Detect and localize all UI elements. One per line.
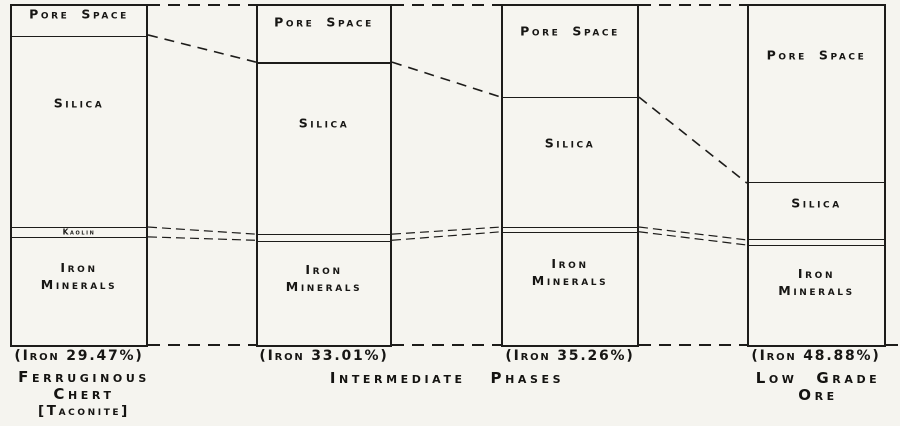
- segment-kaolin-band: [503, 227, 637, 234]
- connector-dashed-line: [639, 97, 747, 183]
- bar-column-ferruginous-chert: Pore Space Silica Kaolin Iron Minerals: [10, 4, 148, 347]
- iron-percentage-caption: (Iron 33.01%): [259, 348, 388, 364]
- connector-dashed-line: [392, 62, 501, 97]
- connector-dashed-line: [148, 227, 256, 234]
- segment-silica: Silica: [258, 64, 390, 234]
- segment-label-iron-minerals: Iron Minerals: [769, 266, 865, 300]
- segment-label-pore-space: Pore Space: [749, 48, 884, 63]
- segment-kaolin-band: [749, 239, 884, 246]
- segment-label-silica: Silica: [749, 195, 884, 210]
- segment-silica: Silica: [12, 37, 146, 227]
- category-label-line: Intermediate Phases: [330, 370, 564, 387]
- category-label-line: Ferruginous: [18, 369, 150, 386]
- iron-percentage-caption: (Iron 48.88%): [751, 348, 880, 364]
- segment-pore-space: Pore Space: [258, 6, 390, 62]
- segment-label-kaolin: Kaolin: [12, 229, 146, 237]
- segment-kaolin-band: [258, 234, 390, 242]
- category-label-line: Chert: [18, 386, 150, 403]
- segment-silica: Silica: [749, 183, 884, 239]
- category-label-line: Low Grade: [756, 370, 881, 387]
- connector-dashed-line: [148, 237, 256, 240]
- connector-dashed-line: [639, 232, 747, 245]
- category-label-line: Ore: [756, 387, 881, 404]
- connector-dashed-line: [392, 227, 501, 234]
- segment-iron-minerals: Iron Minerals: [258, 242, 390, 345]
- segment-silica: Silica: [503, 98, 637, 226]
- segment-label-pore-space: Pore Space: [503, 24, 637, 39]
- segment-label-silica: Silica: [258, 116, 390, 131]
- segment-iron-minerals: Iron Minerals: [749, 246, 884, 345]
- segment-pore-space: Pore Space: [12, 6, 146, 36]
- segment-pore-space: Pore Space: [503, 6, 637, 97]
- iron-percentage-caption: (Iron 35.26%): [505, 348, 634, 364]
- segment-label-pore-space: Pore Space: [258, 14, 390, 29]
- category-label-ferruginous-chert: Ferruginous Chert [Taconite]: [18, 369, 150, 420]
- iron-ore-composition-chart: Pore Space Silica Kaolin Iron Minerals P…: [0, 0, 900, 426]
- segment-iron-minerals: Iron Minerals: [12, 238, 146, 345]
- bar-column-intermediate-phase-2: Pore Space Silica Iron Minerals: [501, 4, 639, 347]
- segment-label-pore-space: Pore Space: [12, 7, 146, 22]
- segment-label-iron-minerals: Iron Minerals: [276, 262, 372, 296]
- bar-column-intermediate-phase-1: Pore Space Silica Iron Minerals: [256, 4, 392, 347]
- category-label-intermediate-phases: Intermediate Phases: [330, 370, 564, 387]
- segment-iron-minerals: Iron Minerals: [503, 233, 637, 345]
- bar-column-low-grade-ore: Pore Space Silica Iron Minerals: [747, 4, 886, 347]
- connector-dashed-line: [148, 35, 256, 62]
- segment-kaolin-band: Kaolin: [12, 227, 146, 239]
- category-label-low-grade-ore: Low Grade Ore: [756, 370, 881, 404]
- segment-pore-space: Pore Space: [749, 6, 884, 182]
- segment-label-iron-minerals: Iron Minerals: [31, 260, 127, 294]
- iron-percentage-caption: (Iron 29.47%): [14, 348, 143, 364]
- connector-dashed-line: [639, 227, 747, 240]
- segment-label-silica: Silica: [503, 136, 637, 151]
- segment-label-silica: Silica: [12, 96, 146, 111]
- category-label-line: [Taconite]: [18, 403, 150, 420]
- segment-label-iron-minerals: Iron Minerals: [522, 256, 618, 290]
- connector-dashed-line: [392, 232, 501, 241]
